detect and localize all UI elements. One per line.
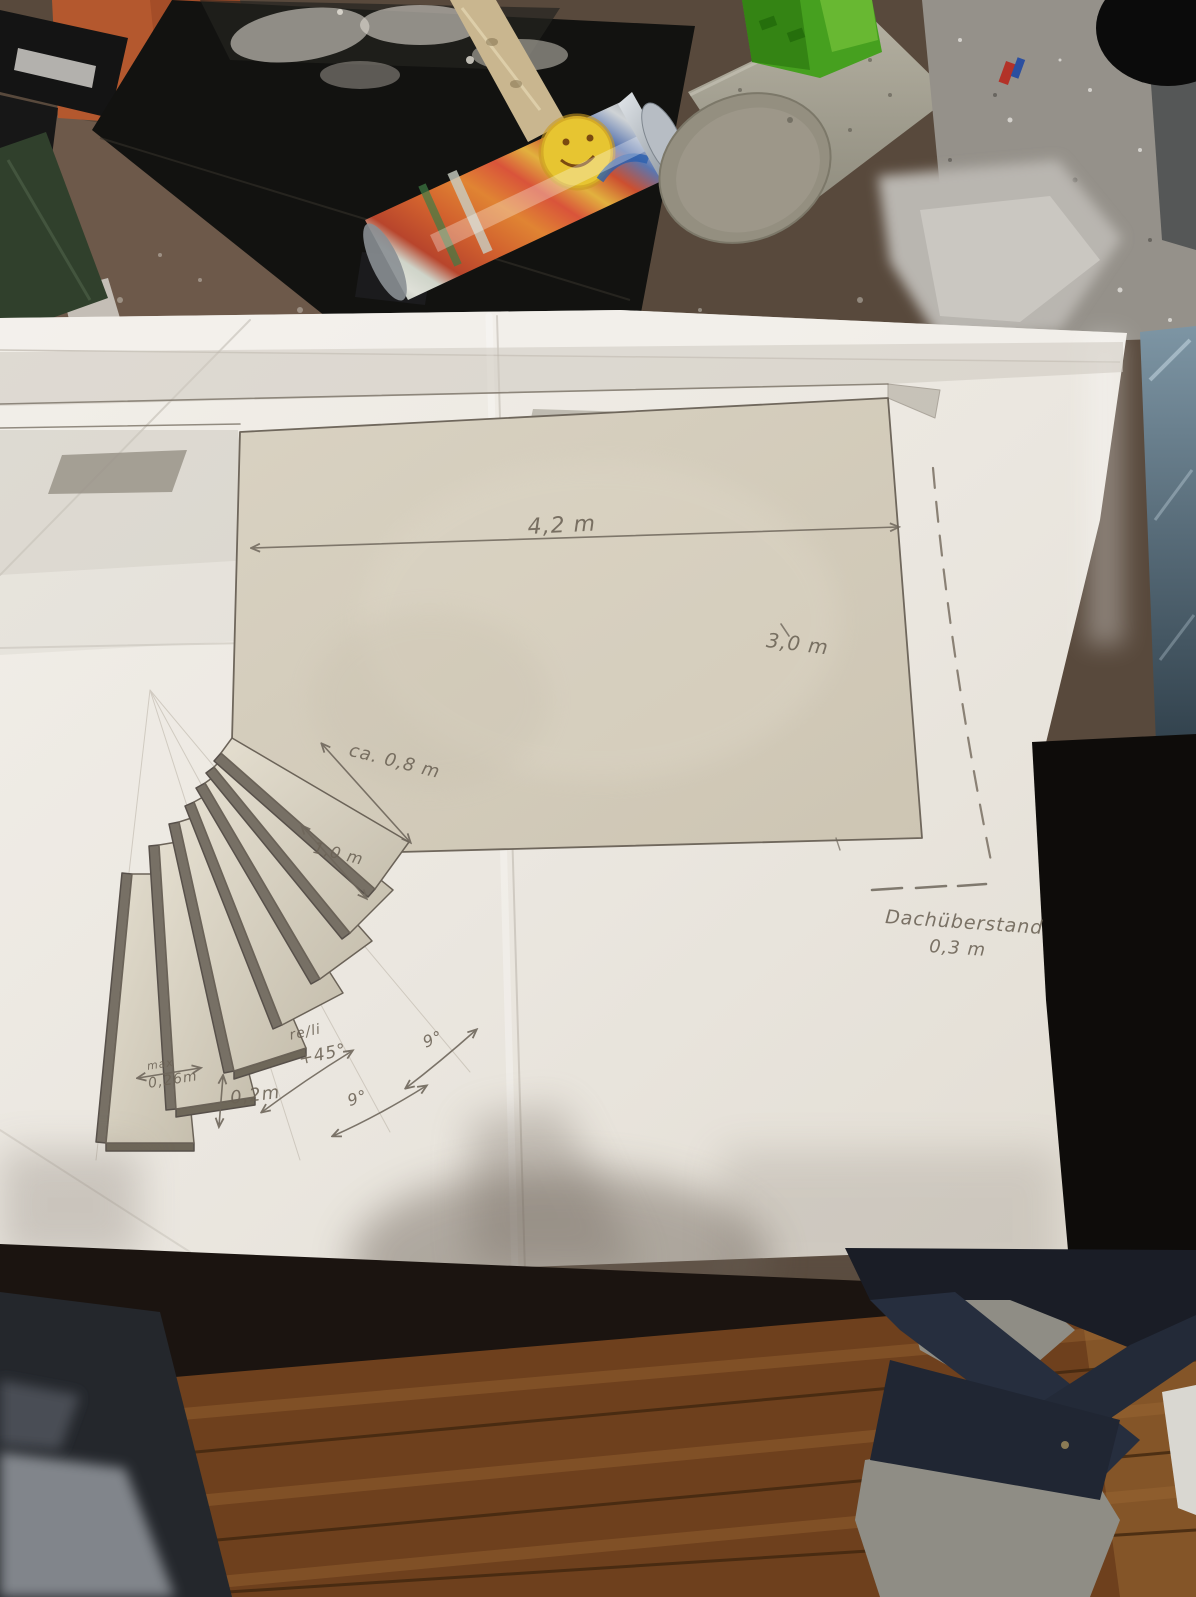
sandal-logo bbox=[1061, 1441, 1069, 1449]
dimension-label-roof-overhang: 0,3 m bbox=[929, 936, 987, 961]
terrace-plan bbox=[232, 398, 922, 852]
workbench-photo: 4,2 m 3,0 m ca. 0,8 m 1,0 m max 0,26m 0,… bbox=[0, 0, 1196, 1597]
glass-table-edge bbox=[1140, 326, 1196, 748]
photo-scene bbox=[0, 0, 1196, 1597]
dimension-label-terrace-width: 4,2 m bbox=[527, 511, 597, 540]
window-rectangle bbox=[48, 450, 187, 494]
